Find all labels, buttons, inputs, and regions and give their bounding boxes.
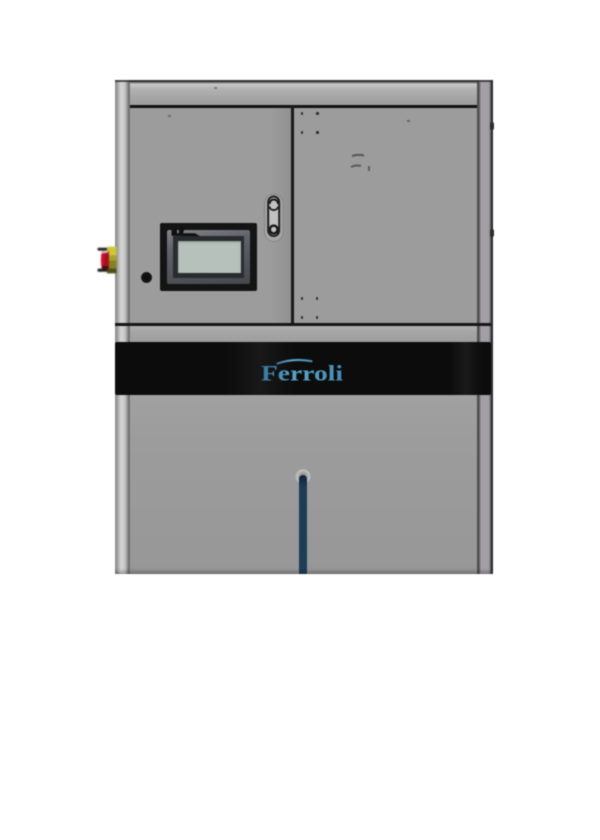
svg-text:Ferroli: Ferroli bbox=[261, 361, 343, 385]
